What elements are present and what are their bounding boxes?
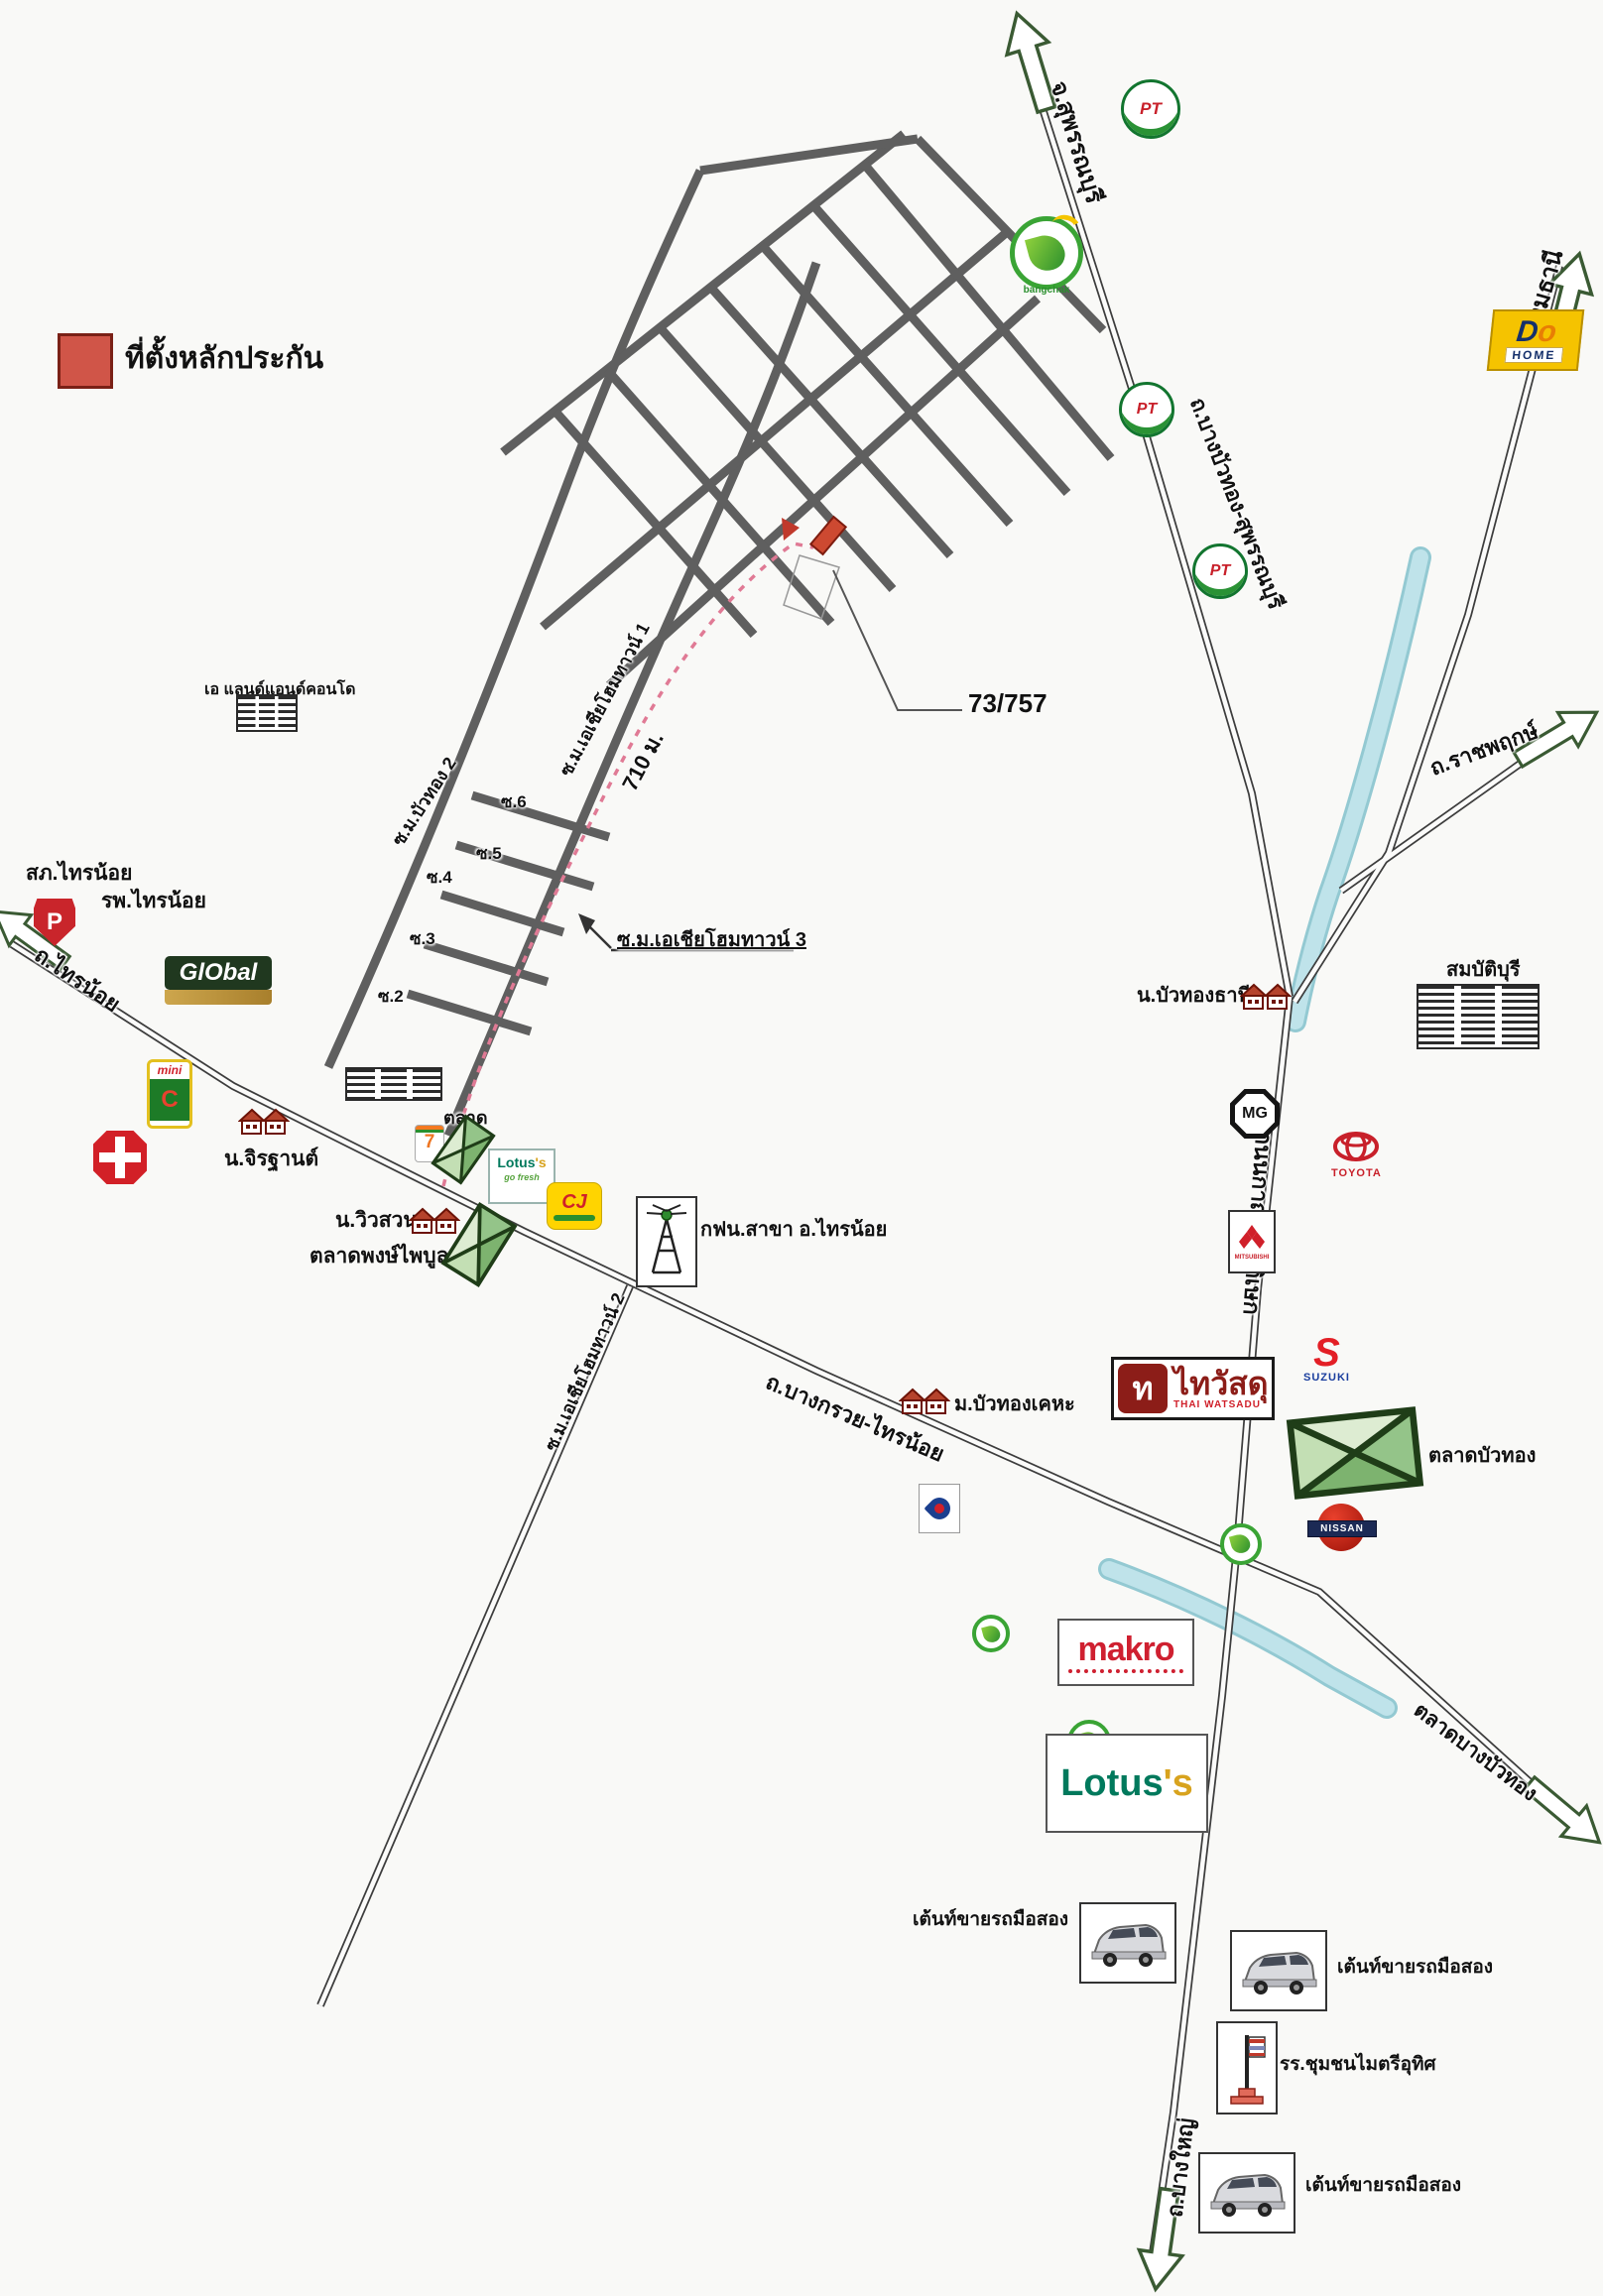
- place-label-buathong-kheha: ม.บัวทองเคหะ: [954, 1394, 1075, 1415]
- global-logo-text: GlObal: [165, 956, 272, 990]
- pt-logo-text: PT: [1210, 562, 1230, 580]
- ptt-station-icon: [919, 1484, 960, 1533]
- shophouse-row-icon: [345, 1067, 442, 1101]
- mea-tower-icon: [636, 1196, 697, 1287]
- village-houses-icon: [409, 1206, 460, 1238]
- pt-logo-text: PT: [1140, 99, 1162, 119]
- pt-station-icon: PT: [1121, 79, 1180, 139]
- mitsubishi-logo: MITSUBISHI: [1228, 1210, 1276, 1273]
- grid-street-b: [543, 233, 1006, 627]
- place-label-buathong-thani: น.บัวทองธานี: [1137, 986, 1251, 1007]
- police-p-text: P: [47, 908, 62, 936]
- pt-station-icon: PT: [1119, 382, 1174, 437]
- legend-collateral-swatch: [58, 333, 113, 389]
- mg-text: MG: [1242, 1105, 1268, 1123]
- soi-2-road: [408, 994, 531, 1031]
- lotus-hypermarket-logo: Lotus's: [1046, 1734, 1208, 1833]
- village-houses-icon: [899, 1387, 950, 1418]
- village-houses-icon: [1240, 982, 1292, 1014]
- dohome-o-text: o: [1537, 315, 1558, 348]
- bangchak-station-icon: bangchak: [1010, 216, 1083, 290]
- soi-label-6: ซ.6: [501, 793, 527, 811]
- lotus-prefix-text: Lotus: [497, 1154, 535, 1170]
- lotus-suffix-text: 's: [535, 1154, 546, 1170]
- global-house-logo: GlObal: [165, 956, 272, 1005]
- suzuki-s-text: S: [1313, 1333, 1340, 1373]
- cj-green-bar: [554, 1215, 595, 1221]
- place-label-hospital: รพ.ไทรน้อย: [101, 891, 206, 912]
- car-icon: [1237, 1942, 1320, 1999]
- place-label-viewsuan: น.วิวสวน: [335, 1210, 418, 1232]
- nissan-text: NISSAN: [1307, 1520, 1377, 1537]
- used-car-tent-icon: [1230, 1930, 1327, 2011]
- condo-building-icon: [236, 694, 298, 732]
- lotus-suffix-text: 's: [1164, 1762, 1193, 1805]
- ptt-drop-icon: [924, 1493, 954, 1523]
- suzuki-text: SUZUKI: [1303, 1373, 1350, 1384]
- collateral-plot-outline: [784, 555, 839, 619]
- village-houses-icon: [238, 1107, 290, 1139]
- place-label-jirathan: น.จิรฐานต์: [224, 1148, 318, 1170]
- mini-bigc-logo: mini C: [147, 1059, 192, 1129]
- ptt-flame-icon: [934, 1504, 944, 1513]
- place-label-mea: กฟน.สาขา อ.ไทรน้อย: [700, 1220, 887, 1241]
- soi-label-4: ซ.4: [427, 869, 452, 887]
- suzuki-logo: S SUZUKI: [1303, 1333, 1350, 1384]
- bangchak-leaf-icon: [1229, 1532, 1252, 1555]
- soi-label-5: ซ.5: [476, 845, 502, 863]
- cj-express-logo: CJ: [547, 1182, 602, 1230]
- grid-tooth-1: [555, 412, 754, 635]
- collateral-house-no: 73/757: [968, 690, 1048, 717]
- transmission-tower-icon: [643, 1203, 690, 1280]
- toyota-emblem-icon: [1332, 1131, 1380, 1162]
- sombatburi-building-icon: [1417, 984, 1540, 1049]
- place-label-phongphaiboon: ตลาดพงษ์ไพบูลย์: [309, 1246, 461, 1268]
- collateral-callout-line: [833, 570, 962, 710]
- collateral-marker-group: [782, 517, 962, 710]
- pt-station-icon: PT: [1192, 544, 1248, 599]
- dohome-home-text: HOME: [1505, 347, 1564, 363]
- used-car-tent-icon: [1198, 2152, 1295, 2234]
- makro-logo: makro: [1057, 1619, 1194, 1686]
- car-icon: [1205, 2164, 1289, 2222]
- pt-logo-text: PT: [1137, 401, 1157, 419]
- grid-street-a: [503, 134, 904, 452]
- lotus-gofresh-logo: Lotus's go fresh: [488, 1148, 555, 1204]
- used-car-tent-icon: [1079, 1902, 1176, 1984]
- market-icon-buathong: [1286, 1405, 1424, 1500]
- place-label-police: สภ.ไทรน้อย: [26, 863, 132, 885]
- grid-street-c: [609, 299, 1038, 685]
- bangchak-leaf-icon: [981, 1624, 1002, 1644]
- bangchak-logo-text: bangchak: [1015, 285, 1078, 296]
- school-flag-icon: [1216, 2021, 1278, 2115]
- place-label-buathong-market: ตลาดบัวทอง: [1428, 1446, 1536, 1467]
- cross-bar-v: [115, 1137, 126, 1177]
- hospital-cross-icon: [93, 1131, 147, 1184]
- soi-label-asia-hometown3: ซ.ม.เอเชียโฮมทาวน์ 3: [617, 930, 806, 951]
- soi-label-2: ซ.2: [378, 988, 404, 1006]
- subdivision-streets: [328, 134, 1111, 1136]
- car-icon: [1086, 1914, 1170, 1972]
- seven-text: 7: [425, 1132, 435, 1152]
- thaiwatsadu-mark-text: ท: [1118, 1364, 1168, 1413]
- legend-title: ที่ตั้งหลักประกัน: [125, 343, 323, 375]
- mini-text: mini: [150, 1062, 189, 1079]
- cj-text: CJ: [561, 1192, 587, 1212]
- place-label-used-car-2: เต้นท์ขายรถมือสอง: [1337, 1958, 1493, 1978]
- bangchak-station-icon: [972, 1615, 1010, 1652]
- gofresh-text: go fresh: [490, 1172, 554, 1182]
- mitsubishi-diamonds-icon: [1236, 1223, 1268, 1253]
- thaiwatsadu-en-text: THAI WATSADU: [1173, 1399, 1268, 1410]
- thaiwatsadu-logo: ท ไทวัสดุ THAI WATSADU: [1111, 1357, 1275, 1420]
- bigc-c-text: C: [150, 1079, 189, 1121]
- toyota-text: TOYOTA: [1331, 1167, 1382, 1179]
- map-canvas: ที่ตั้งหลักประกัน จ.สุพรรณบุรี จ.ปทุมธาน…: [0, 0, 1603, 2296]
- makro-text: makro: [1077, 1632, 1173, 1666]
- toyota-logo: TOYOTA: [1331, 1131, 1382, 1179]
- nissan-logo: NISSAN: [1311, 1504, 1371, 1553]
- bangchak-station-icon: [1220, 1523, 1262, 1565]
- flag-icon: [1225, 2029, 1269, 2107]
- mg-logo: MG: [1230, 1089, 1280, 1139]
- global-logo-strip: [165, 990, 272, 1005]
- mitsubishi-text: MITSUBISHI: [1235, 1255, 1270, 1262]
- soi-label-3: ซ.3: [410, 930, 435, 948]
- thaiwatsadu-thai-text: ไทวัสดุ: [1173, 1368, 1268, 1399]
- place-label-used-car-3: เต้นท์ขายรถมือสอง: [1305, 2176, 1461, 2196]
- grid-street-top: [700, 139, 918, 171]
- makro-underline: [1068, 1669, 1182, 1673]
- place-label-school: รร.ชุมชนไมตรีอุทิศ: [1280, 2055, 1436, 2075]
- place-label-used-car-1: เต้นท์ขายรถมือสอง: [913, 1910, 1068, 1930]
- dohome-logo: Do HOME: [1487, 309, 1585, 371]
- lotus-prefix-text: Lotus: [1060, 1762, 1163, 1805]
- place-label-sombatburi: สมบัติบุรี: [1446, 960, 1521, 981]
